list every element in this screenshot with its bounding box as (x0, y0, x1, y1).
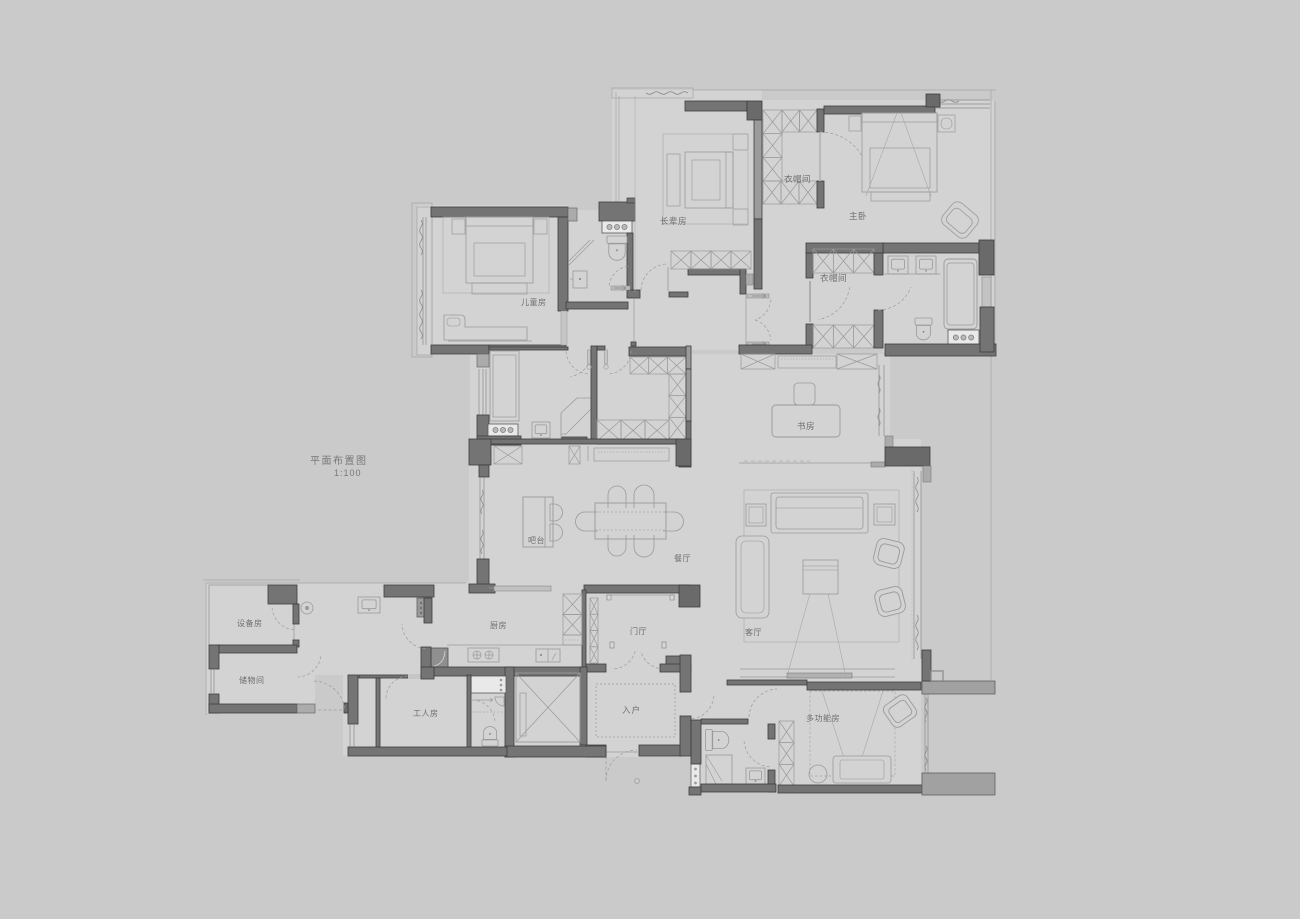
svg-text:衣帽间: 衣帽间 (784, 174, 811, 184)
svg-text:设备房: 设备房 (237, 618, 263, 628)
svg-text:储物间: 储物间 (239, 675, 265, 685)
svg-text:书房: 书房 (797, 421, 815, 431)
svg-text:入户: 入户 (622, 705, 641, 715)
svg-text:长辈房: 长辈房 (660, 216, 687, 226)
svg-text:餐厅: 餐厅 (674, 554, 691, 563)
svg-text:平面布置图: 平面布置图 (310, 455, 368, 467)
svg-text:吧台: 吧台 (528, 535, 545, 545)
svg-text:1:100: 1:100 (334, 468, 362, 478)
svg-text:工人房: 工人房 (413, 708, 439, 718)
svg-text:门厅: 门厅 (630, 626, 647, 636)
svg-text:主卧: 主卧 (849, 211, 867, 221)
svg-text:儿童房: 儿童房 (521, 297, 547, 307)
svg-text:厨房: 厨房 (490, 620, 507, 630)
svg-text:客厅: 客厅 (745, 627, 762, 637)
svg-text:多功能房: 多功能房 (806, 713, 840, 723)
svg-text:衣帽间: 衣帽间 (820, 273, 847, 283)
